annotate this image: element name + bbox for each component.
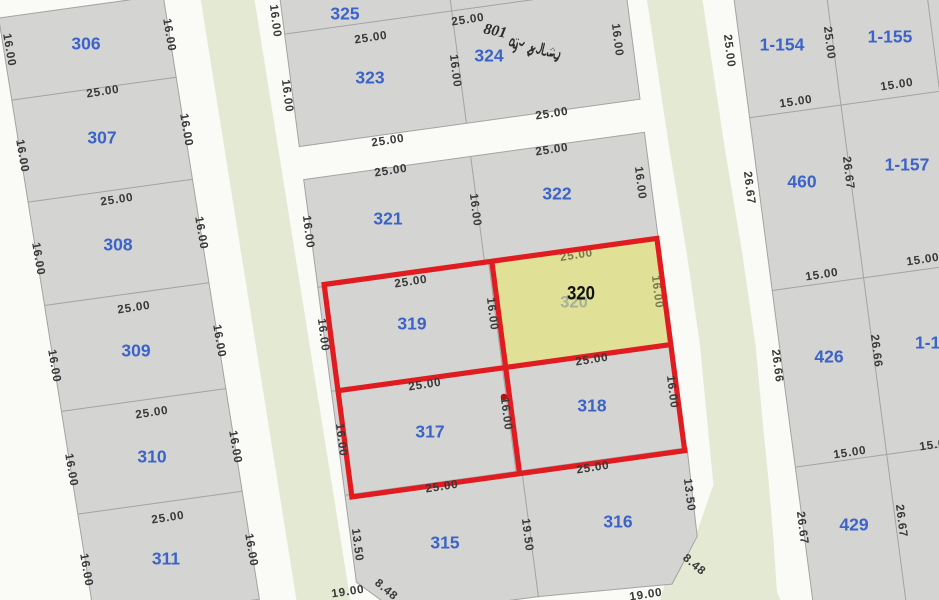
svg-text:317: 317 bbox=[415, 422, 444, 442]
svg-text:320: 320 bbox=[567, 284, 595, 305]
svg-text:315: 315 bbox=[430, 533, 459, 553]
svg-text:324: 324 bbox=[474, 46, 503, 66]
svg-text:318: 318 bbox=[577, 396, 606, 416]
svg-text:325: 325 bbox=[330, 4, 359, 24]
svg-text:429: 429 bbox=[839, 515, 868, 535]
svg-text:321: 321 bbox=[373, 209, 402, 229]
svg-text:319: 319 bbox=[397, 314, 426, 334]
svg-text:1-155: 1-155 bbox=[868, 27, 913, 47]
svg-text:311: 311 bbox=[152, 549, 180, 569]
svg-text:426: 426 bbox=[814, 347, 843, 367]
svg-text:1-15: 1-15 bbox=[915, 333, 939, 353]
svg-text:1-154: 1-154 bbox=[760, 35, 805, 55]
svg-text:460: 460 bbox=[787, 172, 816, 192]
svg-text:308: 308 bbox=[103, 235, 132, 255]
svg-text:306: 306 bbox=[71, 34, 100, 54]
svg-text:322: 322 bbox=[542, 184, 571, 204]
svg-text:1-157: 1-157 bbox=[885, 155, 930, 175]
svg-text:310: 310 bbox=[137, 447, 166, 467]
svg-text:323: 323 bbox=[355, 68, 384, 88]
svg-text:309: 309 bbox=[121, 341, 150, 361]
svg-text:307: 307 bbox=[87, 128, 116, 148]
svg-text:316: 316 bbox=[603, 512, 632, 532]
